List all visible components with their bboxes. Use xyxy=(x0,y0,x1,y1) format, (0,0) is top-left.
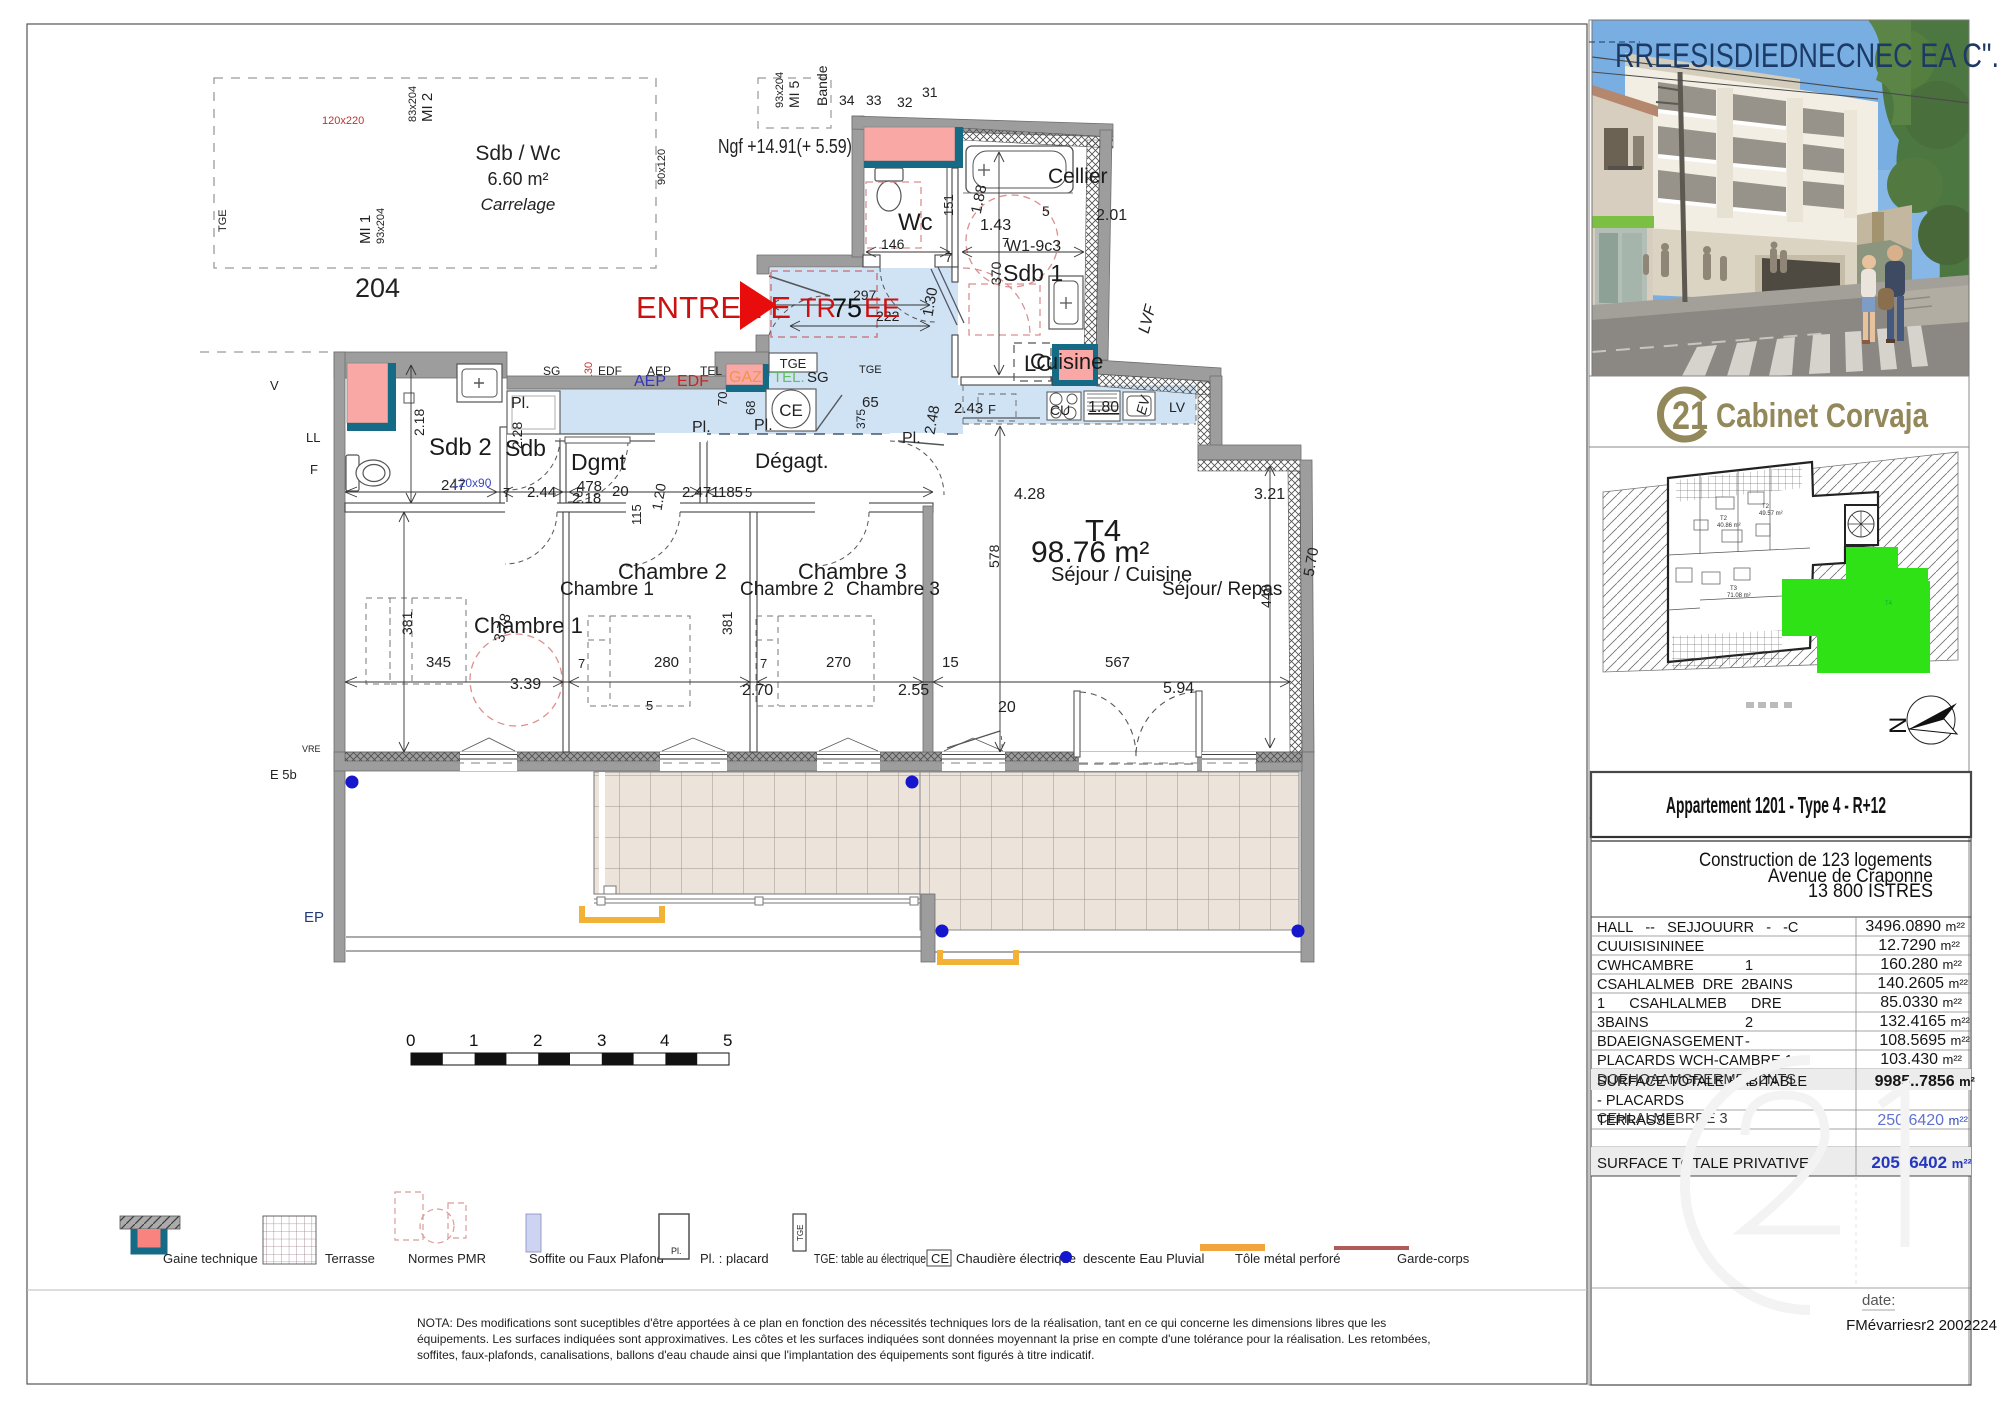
svg-text:Carrelage: Carrelage xyxy=(481,195,556,214)
svg-text:Cabinet Corvaja: Cabinet Corvaja xyxy=(1716,397,1929,435)
svg-text:20: 20 xyxy=(998,699,1016,716)
svg-text:4.28: 4.28 xyxy=(1014,486,1045,503)
svg-text:115: 115 xyxy=(629,504,644,525)
svg-text:146: 146 xyxy=(881,236,905,252)
svg-text:83x204: 83x204 xyxy=(407,86,419,122)
svg-text:90x120: 90x120 xyxy=(656,149,668,185)
svg-text:T4: T4 xyxy=(1885,601,1893,607)
svg-text:5: 5 xyxy=(1042,203,1050,219)
svg-text:EDF: EDF xyxy=(677,373,709,390)
svg-text:Séjour/ Repas: Séjour/ Repas xyxy=(1162,579,1282,600)
svg-text:MI 5: MI 5 xyxy=(786,81,802,108)
svg-text:EP: EP xyxy=(304,909,324,926)
svg-text:70: 70 xyxy=(715,392,730,406)
svg-text:Normes PMR: Normes PMR xyxy=(408,1251,486,1266)
svg-text:1: 1 xyxy=(469,1031,478,1050)
svg-text:Chambre 3: Chambre 3 xyxy=(846,579,940,600)
svg-text:381: 381 xyxy=(719,611,735,635)
svg-text:SG: SG xyxy=(543,364,560,378)
svg-text:3496.0890 m²²: 3496.0890 m²² xyxy=(1865,918,1965,935)
svg-text:345: 345 xyxy=(426,654,451,671)
svg-text:34: 34 xyxy=(839,92,855,108)
svg-text:LV: LV xyxy=(1169,399,1186,415)
svg-text:13 800 ISTRES: 13 800 ISTRES xyxy=(1808,881,1933,902)
svg-text:2.01: 2.01 xyxy=(1096,207,1127,224)
svg-text:TGE: TGE xyxy=(796,1225,805,1241)
svg-text:31: 31 xyxy=(922,84,938,100)
svg-text:LC: LC xyxy=(1024,351,1052,376)
svg-text:TGE: TGE xyxy=(217,209,229,232)
svg-text:93x204: 93x204 xyxy=(774,72,786,108)
svg-text:3.39: 3.39 xyxy=(510,676,541,693)
svg-text:108.5695 m²²: 108.5695 m²² xyxy=(1879,1032,1970,1049)
svg-text:12.7290 m²²: 12.7290 m²² xyxy=(1878,937,1960,954)
svg-text:Wc: Wc xyxy=(898,209,933,236)
svg-text:Appartement 1201 - Type 4 - R: Appartement 1201 - Type 4 - R+12 xyxy=(1666,792,1886,818)
svg-text:375: 375 xyxy=(854,409,868,429)
svg-text:- PLACARDS: - PLACARDS xyxy=(1597,1093,1684,1109)
svg-text:date:: date: xyxy=(1862,1292,1895,1309)
svg-text:2.471: 2.471 xyxy=(682,484,720,501)
svg-text:370: 370 xyxy=(988,261,1004,285)
svg-text:20: 20 xyxy=(612,483,629,500)
svg-text:270: 270 xyxy=(826,654,851,671)
svg-text:F: F xyxy=(310,462,318,477)
svg-text:CU: CU xyxy=(1050,402,1070,418)
svg-text:68: 68 xyxy=(743,401,758,415)
svg-text:567: 567 xyxy=(1105,654,1130,671)
svg-text:TGE: table au électrique: TGE: table au électrique xyxy=(814,1252,926,1266)
svg-text:TEL.: TEL. xyxy=(773,369,805,386)
svg-text:EE: EE xyxy=(864,293,900,323)
svg-text:2.18: 2.18 xyxy=(411,409,427,436)
svg-text:CE: CE xyxy=(779,401,803,420)
svg-text:578: 578 xyxy=(986,544,1002,568)
svg-text:120x220: 120x220 xyxy=(322,115,364,127)
svg-text:HALL -- SEJJOUURR - -C: HALL -- SEJJOUURR - -C xyxy=(1597,920,1798,936)
svg-text:CUUISISININEE: CUUISISININEE xyxy=(1597,939,1704,955)
svg-text:Gaine technique: Gaine technique xyxy=(163,1251,258,1266)
svg-text:N: N xyxy=(1885,717,1912,734)
svg-text:LL: LL xyxy=(306,430,320,445)
svg-text:-: - xyxy=(1745,1034,1750,1050)
svg-text:Chambre 1: Chambre 1 xyxy=(474,613,583,638)
svg-text:Pl.: Pl. xyxy=(902,430,921,447)
svg-text:Sdb: Sdb xyxy=(505,435,546,461)
svg-text:7: 7 xyxy=(1002,235,1009,250)
svg-text:1.80: 1.80 xyxy=(1088,399,1119,416)
svg-text:Pl.: Pl. xyxy=(671,1246,682,1256)
svg-text:0: 0 xyxy=(406,1031,415,1050)
svg-text:15: 15 xyxy=(942,654,959,671)
svg-text:9985..7856 m²: 9985..7856 m² xyxy=(1875,1073,1976,1090)
svg-text:descente Eau Pluvial: descente Eau Pluvial xyxy=(1083,1251,1205,1266)
svg-text:140.2605 m²²: 140.2605 m²² xyxy=(1877,975,1968,992)
svg-text:BDAEIGNASGEMENT: BDAEIGNASGEMENT xyxy=(1597,1034,1744,1050)
svg-text:AEP: AEP xyxy=(634,373,666,390)
svg-text:5: 5 xyxy=(646,698,653,713)
svg-text:1.43: 1.43 xyxy=(980,217,1011,234)
svg-text:Sdb 2: Sdb 2 xyxy=(429,434,492,461)
svg-text:3.21: 3.21 xyxy=(1254,486,1285,503)
svg-text:185: 185 xyxy=(718,484,743,501)
svg-text:103.430 m²²: 103.430 m²² xyxy=(1880,1051,1962,1068)
svg-text:2.18: 2.18 xyxy=(572,490,601,507)
svg-text:T2: T2 xyxy=(1720,516,1728,522)
svg-text:W1-9c3: W1-9c3 xyxy=(1006,238,1061,255)
svg-text:V: V xyxy=(270,378,279,393)
svg-text:SG: SG xyxy=(807,369,829,386)
svg-text:250.6420 m²²: 250.6420 m²² xyxy=(1877,1112,1968,1129)
svg-text:Pl.: Pl. xyxy=(754,417,773,434)
svg-text:Chambre 2: Chambre 2 xyxy=(618,559,727,584)
svg-text:Chaudière électrique: Chaudière électrique xyxy=(956,1251,1076,1266)
svg-text:F: F xyxy=(988,402,996,417)
svg-text:6.60 m²: 6.60 m² xyxy=(487,169,548,189)
svg-text:équipements. Les surfaces indi: équipements. Les surfaces indiquées sont… xyxy=(417,1332,1431,1346)
svg-text:7: 7 xyxy=(578,656,585,671)
svg-text:Pl. : placard: Pl. : placard xyxy=(700,1251,769,1266)
svg-text:5: 5 xyxy=(723,1031,732,1050)
svg-text:2.43: 2.43 xyxy=(954,400,983,417)
svg-text:71.08 m²: 71.08 m² xyxy=(1727,593,1751,599)
svg-text:85.0330 m²²: 85.0330 m²² xyxy=(1880,994,1962,1011)
svg-text:7: 7 xyxy=(760,656,767,671)
svg-text:Terrasse: Terrasse xyxy=(325,1251,375,1266)
svg-text:MI 1: MI 1 xyxy=(357,215,374,244)
svg-text:CSAHLALMEB DRE 2BAINS: CSAHLALMEB DRE 2BAINS xyxy=(1597,977,1793,993)
svg-text:4: 4 xyxy=(660,1031,669,1050)
svg-text:SURFACE TOTALE PRIVATIVE: SURFACE TOTALE PRIVATIVE xyxy=(1597,1155,1809,1172)
svg-text:1: 1 xyxy=(1745,958,1753,974)
svg-text:2: 2 xyxy=(1745,1015,1753,1031)
svg-text:49.57 m²: 49.57 m² xyxy=(1759,511,1783,517)
svg-text:Tôle métal perforé: Tôle métal perforé xyxy=(1235,1251,1341,1266)
svg-text:205..6402 m²²: 205..6402 m²² xyxy=(1871,1153,1972,1172)
svg-text:2: 2 xyxy=(533,1031,542,1050)
svg-text:7: 7 xyxy=(503,485,510,500)
svg-text:CWHCAMBRE: CWHCAMBRE xyxy=(1597,958,1694,974)
svg-text:TGE: TGE xyxy=(859,364,882,376)
svg-text:3BAINS: 3BAINS xyxy=(1597,1015,1649,1031)
svg-text:5: 5 xyxy=(745,485,752,500)
svg-text:T2: T2 xyxy=(1762,504,1770,510)
svg-text:Pl.: Pl. xyxy=(511,395,530,412)
svg-text:93x204: 93x204 xyxy=(375,208,387,244)
svg-text:33: 33 xyxy=(866,92,882,108)
svg-text:65: 65 xyxy=(862,394,879,411)
svg-text:2.70: 2.70 xyxy=(742,682,773,699)
svg-text:Garde-corps: Garde-corps xyxy=(1397,1251,1470,1266)
svg-text:MI 2: MI 2 xyxy=(419,93,436,122)
svg-text:120x90: 120x90 xyxy=(452,476,492,490)
svg-text:Ngf +14.91(+ 5.59): Ngf +14.91(+ 5.59) xyxy=(718,136,852,158)
svg-text:280: 280 xyxy=(654,654,679,671)
svg-text:5.94: 5.94 xyxy=(1163,680,1194,697)
svg-text:7: 7 xyxy=(945,250,952,265)
svg-text:2.55: 2.55 xyxy=(898,682,929,699)
svg-text:RREESISDIEDNECNEC EA C".: RREESISDIEDNECNEC EA C". xyxy=(1615,37,1999,75)
svg-text:21: 21 xyxy=(1672,394,1708,438)
svg-text:Bande: Bande xyxy=(814,65,830,106)
svg-text:1 CSAHLALMEB DRE: 1 CSAHLALMEB DRE xyxy=(1597,996,1782,1012)
svg-text:NOTA: Des modifications sont s: NOTA: Des modifications sont suceptibles… xyxy=(417,1316,1386,1330)
svg-text:75: 75 xyxy=(832,293,862,323)
svg-text:GAZ: GAZ xyxy=(729,369,762,386)
svg-text:381: 381 xyxy=(399,611,415,635)
svg-text:Pl.: Pl. xyxy=(692,419,711,436)
svg-text:T3: T3 xyxy=(1730,586,1738,592)
svg-text:Cellier: Cellier xyxy=(1048,165,1108,188)
svg-text:151: 151 xyxy=(941,194,956,216)
svg-text:Dgmt: Dgmt xyxy=(571,449,627,475)
svg-text:3: 3 xyxy=(597,1031,606,1050)
svg-text:E 5b: E 5b xyxy=(270,767,297,782)
svg-text:DOEHOAAMGRERMEE 2NTS: DOEHOAAMGRERMEE 2NTS xyxy=(1597,1072,1796,1088)
svg-text:FMévarriesr2 2002224: FMévarriesr2 2002224 xyxy=(1846,1317,1997,1334)
svg-text:40.86 m²: 40.86 m² xyxy=(1717,523,1741,529)
svg-text:Soffite ou Faux Plafond: Soffite ou Faux Plafond xyxy=(529,1251,664,1266)
svg-text:204: 204 xyxy=(355,273,400,303)
svg-text:Dégagt.: Dégagt. xyxy=(755,450,829,473)
svg-text:CE: CE xyxy=(931,1251,949,1266)
svg-text:Sdb / Wc: Sdb / Wc xyxy=(475,142,560,165)
svg-text:VRE: VRE xyxy=(302,744,321,754)
svg-text:2.44: 2.44 xyxy=(527,484,556,501)
svg-text:32: 32 xyxy=(897,94,913,110)
svg-text:160.280 m²²: 160.280 m²² xyxy=(1880,956,1962,973)
svg-text:soffites, faux-plafonds, canal: soffites, faux-plafonds, canalisations, … xyxy=(417,1348,1094,1362)
svg-text:TR: TR xyxy=(800,293,836,323)
svg-text:Sdb 1: Sdb 1 xyxy=(1003,260,1063,286)
svg-text:132.4165 m²²: 132.4165 m²² xyxy=(1879,1013,1970,1030)
svg-text:EDF: EDF xyxy=(598,364,622,378)
